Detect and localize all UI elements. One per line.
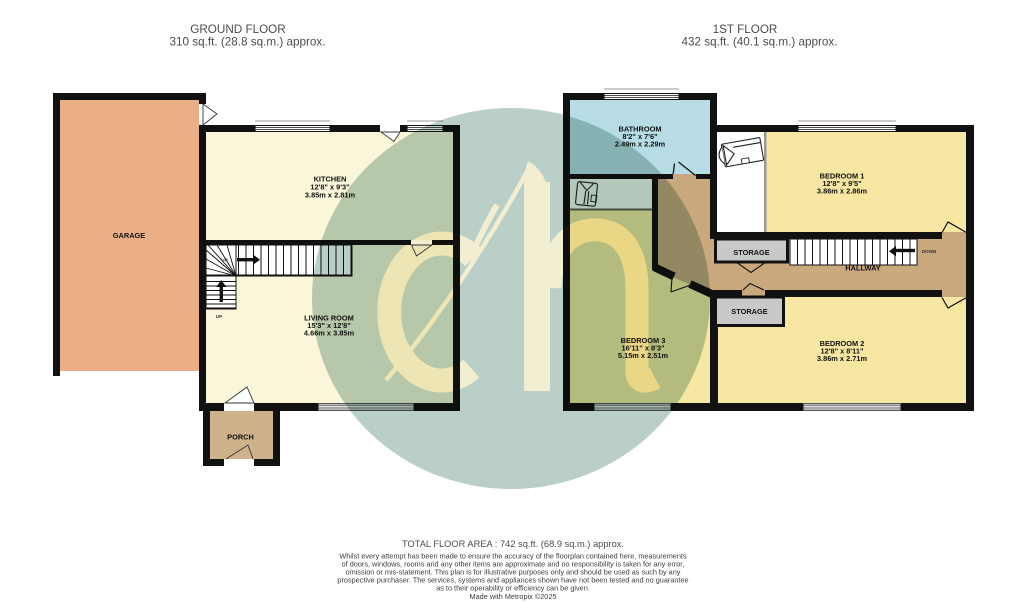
svg-text:GARAGE: GARAGE [113, 231, 146, 240]
svg-text:UP: UP [216, 314, 222, 319]
svg-text:DOWN: DOWN [922, 249, 937, 254]
svg-text:3.85m x 2.81m: 3.85m x 2.81m [305, 190, 356, 199]
svg-text:1ST FLOOR: 1ST FLOOR [713, 23, 778, 36]
svg-text:310 sq.ft. (28.8 sq.m.) approx: 310 sq.ft. (28.8 sq.m.) approx. [170, 36, 326, 49]
svg-text:UP: UP [221, 258, 227, 263]
svg-text:5.15m x 2.51m: 5.15m x 2.51m [618, 351, 669, 360]
svg-text:STORAGE: STORAGE [731, 307, 767, 316]
svg-text:HALLWAY: HALLWAY [845, 263, 881, 272]
svg-text:STORAGE: STORAGE [733, 248, 769, 257]
svg-text:432 sq.ft. (40.1 sq.m.) approx: 432 sq.ft. (40.1 sq.m.) approx. [682, 36, 838, 49]
svg-text:3.86m x 2.86m: 3.86m x 2.86m [817, 187, 868, 196]
svg-text:PORCH: PORCH [227, 432, 254, 441]
svg-text:TOTAL FLOOR AREA : 742 sq.ft.: TOTAL FLOOR AREA : 742 sq.ft. (68.9 sq.m… [402, 539, 624, 549]
svg-text:Made with Metropix ©2025: Made with Metropix ©2025 [470, 592, 557, 601]
svg-text:4.66m x 3.85m: 4.66m x 3.85m [304, 328, 355, 337]
svg-text:2.49m x 2.29m: 2.49m x 2.29m [615, 140, 666, 149]
svg-text:3.86m x 2.71m: 3.86m x 2.71m [817, 354, 868, 363]
svg-text:GROUND FLOOR: GROUND FLOOR [190, 23, 285, 36]
